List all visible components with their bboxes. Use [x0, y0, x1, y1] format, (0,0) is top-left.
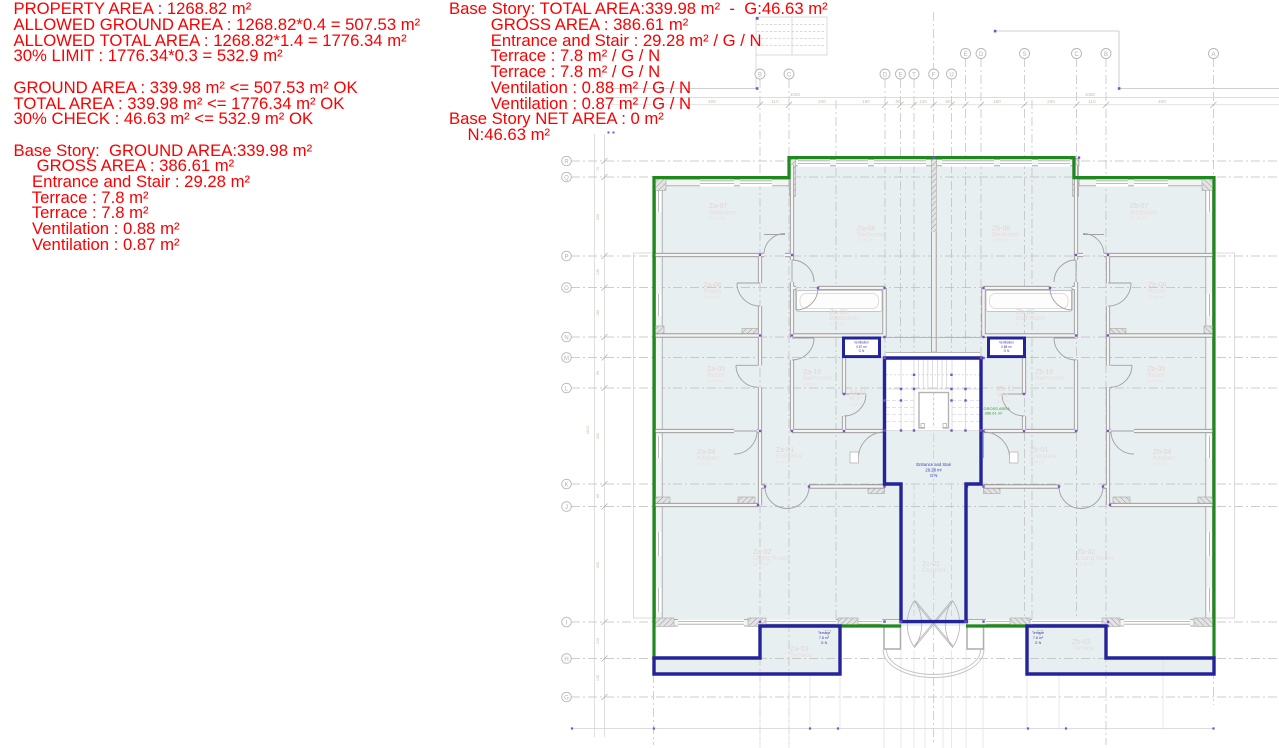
- svg-text:S: S: [1022, 52, 1026, 58]
- svg-text:10.94 m²: 10.94 m²: [1148, 294, 1165, 299]
- svg-text:K: K: [564, 482, 568, 488]
- svg-text:F: F: [932, 72, 936, 78]
- svg-text:7.8 m²: 7.8 m²: [819, 636, 830, 640]
- svg-text:10.94 m²: 10.94 m²: [704, 294, 721, 299]
- svg-text:G: G: [564, 695, 569, 701]
- svg-text:C: C: [1074, 52, 1079, 58]
- svg-text:2.25 m²: 2.25 m²: [997, 398, 1012, 403]
- svg-text:120: 120: [596, 638, 600, 644]
- svg-text:17.33 m²: 17.33 m²: [992, 238, 1009, 243]
- svg-text:G N: G N: [859, 349, 865, 353]
- svg-text:A: A: [1211, 52, 1215, 58]
- svg-text:U: U: [949, 72, 953, 78]
- svg-text:28.05 m²: 28.05 m²: [1077, 561, 1094, 566]
- svg-text:160: 160: [596, 310, 600, 316]
- svg-text:T: T: [912, 72, 916, 78]
- svg-text:70: 70: [596, 167, 600, 171]
- svg-text:6.40 m²: 6.40 m²: [1030, 459, 1045, 464]
- svg-text:R: R: [564, 159, 569, 165]
- svg-text:110: 110: [1088, 99, 1096, 104]
- svg-text:G N: G N: [1035, 641, 1042, 645]
- svg-text:29.28 m²: 29.28 m²: [925, 468, 942, 473]
- svg-text:7.8 m²: 7.8 m²: [1033, 636, 1044, 640]
- svg-text:386.61 m²: 386.61 m²: [985, 411, 1004, 416]
- svg-text:2010: 2010: [586, 426, 590, 434]
- svg-text:4.95 m²: 4.95 m²: [803, 381, 818, 386]
- svg-text:H: H: [564, 657, 568, 663]
- svg-text:130: 130: [596, 269, 600, 275]
- svg-text:400: 400: [596, 562, 600, 568]
- svg-text:11.68 m²: 11.68 m²: [1147, 378, 1164, 383]
- svg-text:200: 200: [1047, 99, 1055, 104]
- svg-text:4.95 m²: 4.95 m²: [1035, 381, 1050, 386]
- svg-text:Corridor: Corridor: [922, 567, 947, 574]
- svg-text:28.05 m²: 28.05 m²: [753, 561, 770, 566]
- svg-text:9.35 m²: 9.35 m²: [697, 461, 712, 466]
- svg-text:120: 120: [919, 99, 927, 104]
- svg-text:Terrace: Terrace: [790, 652, 812, 659]
- svg-text:Q: Q: [564, 175, 569, 181]
- svg-text:300: 300: [596, 433, 600, 439]
- svg-text:160: 160: [993, 99, 1001, 104]
- svg-text:1050: 1050: [1085, 92, 1096, 97]
- svg-text:17.33 m²: 17.33 m²: [857, 238, 874, 243]
- svg-text:G N: G N: [1004, 349, 1010, 353]
- svg-text:E: E: [898, 72, 902, 78]
- svg-text:15.16 m²: 15.16 m²: [1130, 216, 1147, 221]
- svg-text:65: 65: [596, 494, 600, 498]
- svg-text:E: E: [963, 52, 967, 58]
- svg-text:400: 400: [1158, 99, 1166, 104]
- svg-text:95: 95: [596, 371, 600, 375]
- svg-text:D: D: [883, 72, 888, 78]
- svg-text:Entrance and Stair: Entrance and Stair: [916, 462, 951, 467]
- svg-text:Terrace: Terrace: [1072, 645, 1094, 652]
- svg-text:D: D: [979, 52, 984, 58]
- svg-text:6.40 m²: 6.40 m²: [776, 459, 791, 464]
- svg-text:N: N: [564, 335, 568, 341]
- svg-text:60: 60: [945, 99, 951, 104]
- svg-text:2.25 m²: 2.25 m²: [849, 402, 864, 407]
- svg-text:P: P: [564, 254, 568, 260]
- svg-text:60: 60: [895, 99, 901, 104]
- svg-text:140: 140: [596, 675, 600, 681]
- svg-text:Terrace: Terrace: [818, 631, 830, 635]
- svg-text:O: O: [564, 286, 569, 292]
- svg-text:B: B: [1104, 52, 1108, 58]
- svg-text:G N: G N: [930, 473, 937, 478]
- svg-text:5.75 m²: 5.75 m²: [830, 321, 845, 326]
- svg-text:G N: G N: [821, 641, 828, 645]
- svg-text:11.68 m²: 11.68 m²: [707, 378, 724, 383]
- svg-text:9.35 m²: 9.35 m²: [1153, 461, 1168, 466]
- svg-text:Terrace: Terrace: [1032, 631, 1044, 635]
- svg-text:150: 150: [862, 99, 870, 104]
- svg-text:M: M: [564, 356, 569, 362]
- svg-text:J: J: [565, 505, 568, 511]
- svg-text:5.75 m²: 5.75 m²: [1016, 321, 1031, 326]
- svg-text:15.16 m²: 15.16 m²: [709, 216, 726, 221]
- svg-text:250: 250: [596, 214, 600, 220]
